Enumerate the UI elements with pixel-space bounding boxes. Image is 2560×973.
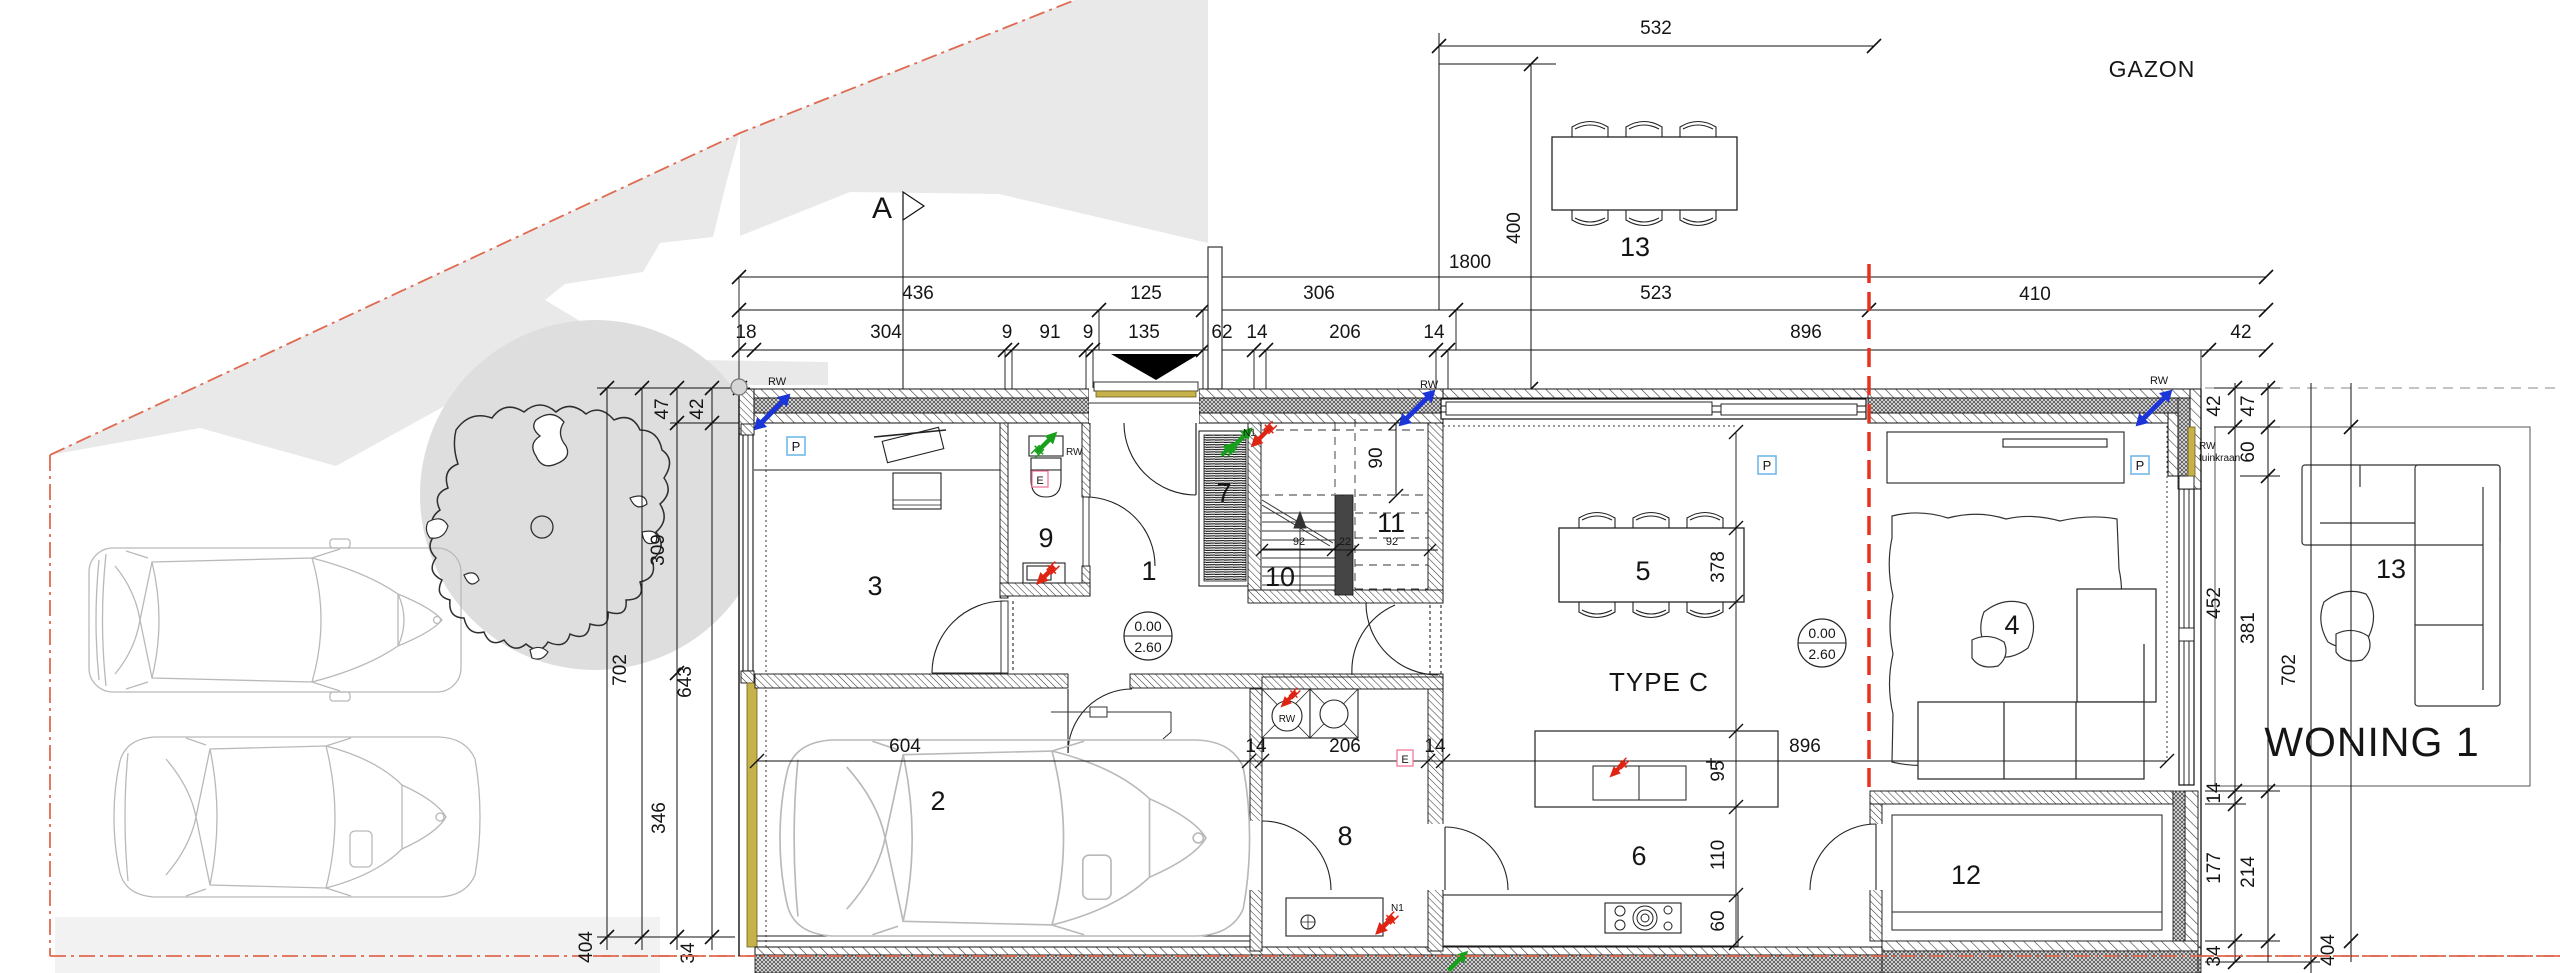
svg-text:896: 896: [1790, 322, 1822, 343]
svg-text:523: 523: [1640, 283, 1672, 304]
svg-text:34: 34: [678, 942, 699, 964]
svg-text:11: 11: [1377, 508, 1405, 538]
svg-text:2: 2: [930, 786, 945, 816]
svg-text:18: 18: [735, 322, 756, 343]
svg-text:404: 404: [576, 931, 597, 963]
svg-text:92: 92: [1293, 536, 1305, 548]
svg-text:532: 532: [1640, 18, 1672, 39]
svg-text:436: 436: [902, 283, 934, 304]
svg-text:4: 4: [2004, 610, 2019, 640]
svg-text:13: 13: [2376, 554, 2406, 584]
svg-text:13: 13: [1620, 232, 1650, 262]
svg-text:604: 604: [889, 736, 921, 757]
svg-text:346: 346: [649, 802, 670, 834]
svg-text:452: 452: [2204, 587, 2225, 619]
svg-text:A: A: [872, 192, 892, 225]
svg-text:12: 12: [1951, 860, 1981, 890]
svg-text:8: 8: [1337, 821, 1352, 851]
svg-text:P: P: [1763, 458, 1772, 473]
svg-text:95: 95: [1708, 760, 1729, 781]
svg-text:304: 304: [870, 322, 902, 343]
svg-text:306: 306: [1303, 283, 1335, 304]
svg-text:RW: RW: [768, 376, 787, 388]
svg-text:E: E: [1036, 475, 1043, 487]
svg-text:60: 60: [1708, 910, 1729, 931]
svg-text:206: 206: [1329, 322, 1361, 343]
svg-text:42: 42: [2230, 322, 2251, 343]
svg-text:9: 9: [1038, 523, 1053, 553]
svg-text:177: 177: [2204, 852, 2225, 884]
svg-text:N1: N1: [1391, 903, 1404, 914]
svg-text:400: 400: [1504, 212, 1525, 244]
svg-text:RW: RW: [2150, 375, 2169, 387]
svg-text:7: 7: [1216, 478, 1231, 508]
svg-text:206: 206: [1329, 736, 1361, 757]
svg-text:0.00: 0.00: [1134, 618, 1161, 634]
svg-text:E: E: [1401, 754, 1408, 766]
svg-text:5: 5: [1635, 556, 1650, 586]
svg-text:GAZON: GAZON: [2109, 56, 2196, 82]
svg-text:RW: RW: [1066, 447, 1083, 458]
svg-text:RW: RW: [2199, 441, 2216, 452]
svg-text:896: 896: [1789, 736, 1821, 757]
svg-text:N1: N1: [1243, 428, 1256, 439]
svg-text:47: 47: [652, 398, 673, 419]
svg-text:125: 125: [1130, 283, 1162, 304]
svg-text:60: 60: [2238, 441, 2259, 462]
svg-text:214: 214: [2238, 856, 2259, 888]
svg-text:P: P: [792, 439, 801, 454]
svg-text:110: 110: [1708, 840, 1729, 870]
svg-text:0.00: 0.00: [1808, 625, 1835, 641]
svg-text:309: 309: [648, 534, 669, 566]
svg-text:91: 91: [1039, 322, 1060, 343]
svg-text:22: 22: [1339, 536, 1351, 548]
svg-text:135: 135: [1128, 322, 1160, 343]
svg-text:2.60: 2.60: [1134, 639, 1161, 655]
svg-text:381: 381: [2238, 612, 2259, 644]
svg-text:6: 6: [1631, 841, 1646, 871]
svg-text:10: 10: [1265, 562, 1295, 592]
svg-text:643: 643: [675, 666, 696, 698]
svg-text:9: 9: [1002, 322, 1013, 343]
svg-text:410: 410: [2019, 284, 2051, 305]
svg-text:702: 702: [610, 654, 631, 686]
svg-text:9: 9: [1083, 322, 1094, 343]
svg-text:42: 42: [687, 398, 708, 419]
svg-text:2.60: 2.60: [1808, 646, 1835, 662]
svg-text:14: 14: [1246, 322, 1268, 343]
svg-text:1: 1: [1141, 556, 1156, 586]
svg-text:1800: 1800: [1449, 252, 1491, 273]
svg-text:14: 14: [2204, 782, 2225, 804]
svg-text:14: 14: [1245, 736, 1267, 757]
svg-text:TYPE C: TYPE C: [1609, 667, 1709, 697]
svg-text:P: P: [2136, 458, 2145, 473]
svg-text:3: 3: [867, 571, 882, 601]
svg-text:42: 42: [2204, 395, 2225, 416]
svg-text:702: 702: [2279, 654, 2300, 686]
svg-text:47: 47: [2238, 395, 2259, 416]
svg-text:14: 14: [1423, 322, 1445, 343]
svg-text:62: 62: [1211, 322, 1232, 343]
svg-text:tuinkraan: tuinkraan: [2199, 453, 2240, 464]
svg-text:404: 404: [2318, 934, 2339, 966]
svg-text:RW: RW: [1279, 714, 1296, 725]
svg-text:RW: RW: [1420, 379, 1439, 391]
svg-text:90: 90: [1366, 447, 1387, 468]
svg-text:WONING 1: WONING 1: [2264, 719, 2479, 765]
svg-text:14: 14: [1424, 736, 1446, 757]
svg-text:378: 378: [1708, 551, 1729, 583]
